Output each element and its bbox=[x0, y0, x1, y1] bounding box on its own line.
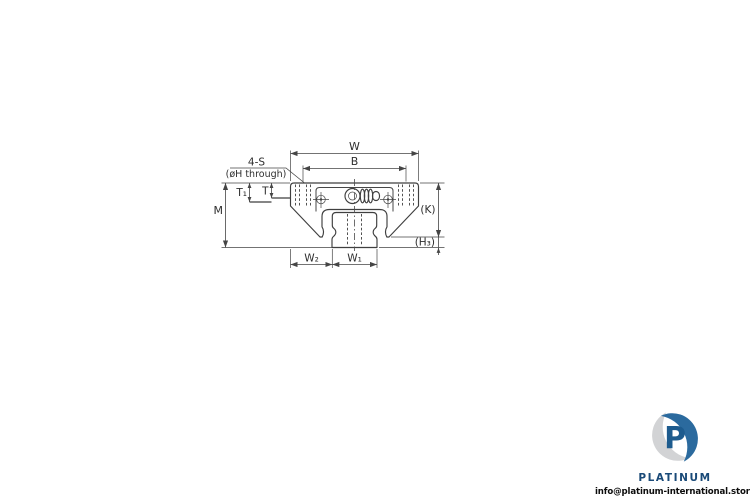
dimension-w2: W₂ bbox=[291, 249, 333, 268]
dimension-w1: W₁ bbox=[332, 249, 377, 268]
grease-nipple bbox=[345, 189, 380, 204]
tapped-hole-right bbox=[380, 192, 396, 208]
label-h3: (H₃) bbox=[415, 237, 435, 249]
dimension-m: M bbox=[214, 183, 333, 248]
dimension-t: T bbox=[261, 183, 290, 198]
tapped-hole-left bbox=[313, 192, 329, 208]
platinum-logo: P PLATINUM info@platinum-international.s… bbox=[595, 403, 750, 497]
callout-4s-hole: 4-S (øH through) bbox=[226, 157, 305, 184]
label-k: (K) bbox=[420, 204, 435, 216]
label-hole-note: (øH through) bbox=[226, 169, 287, 180]
contact-email: info@platinum-international.store bbox=[595, 487, 750, 497]
label-w: W bbox=[349, 140, 360, 153]
monogram-p: P bbox=[664, 421, 686, 456]
dimension-h3: (H₃) bbox=[379, 230, 445, 256]
label-t: T bbox=[261, 186, 269, 198]
label-w2: W₂ bbox=[304, 253, 319, 265]
label-w1: W₁ bbox=[347, 253, 362, 265]
label-4s: 4-S bbox=[248, 157, 265, 169]
dimension-k: (K) bbox=[391, 183, 445, 237]
label-t1: T₁ bbox=[235, 187, 247, 199]
brand-wordmark: PLATINUM bbox=[595, 472, 750, 484]
platinum-logo-mark: P bbox=[646, 408, 704, 466]
label-b: B bbox=[351, 155, 359, 168]
label-m: M bbox=[214, 204, 224, 217]
pinwheel-icon: P bbox=[652, 412, 698, 461]
dimension-b: B bbox=[303, 155, 406, 182]
